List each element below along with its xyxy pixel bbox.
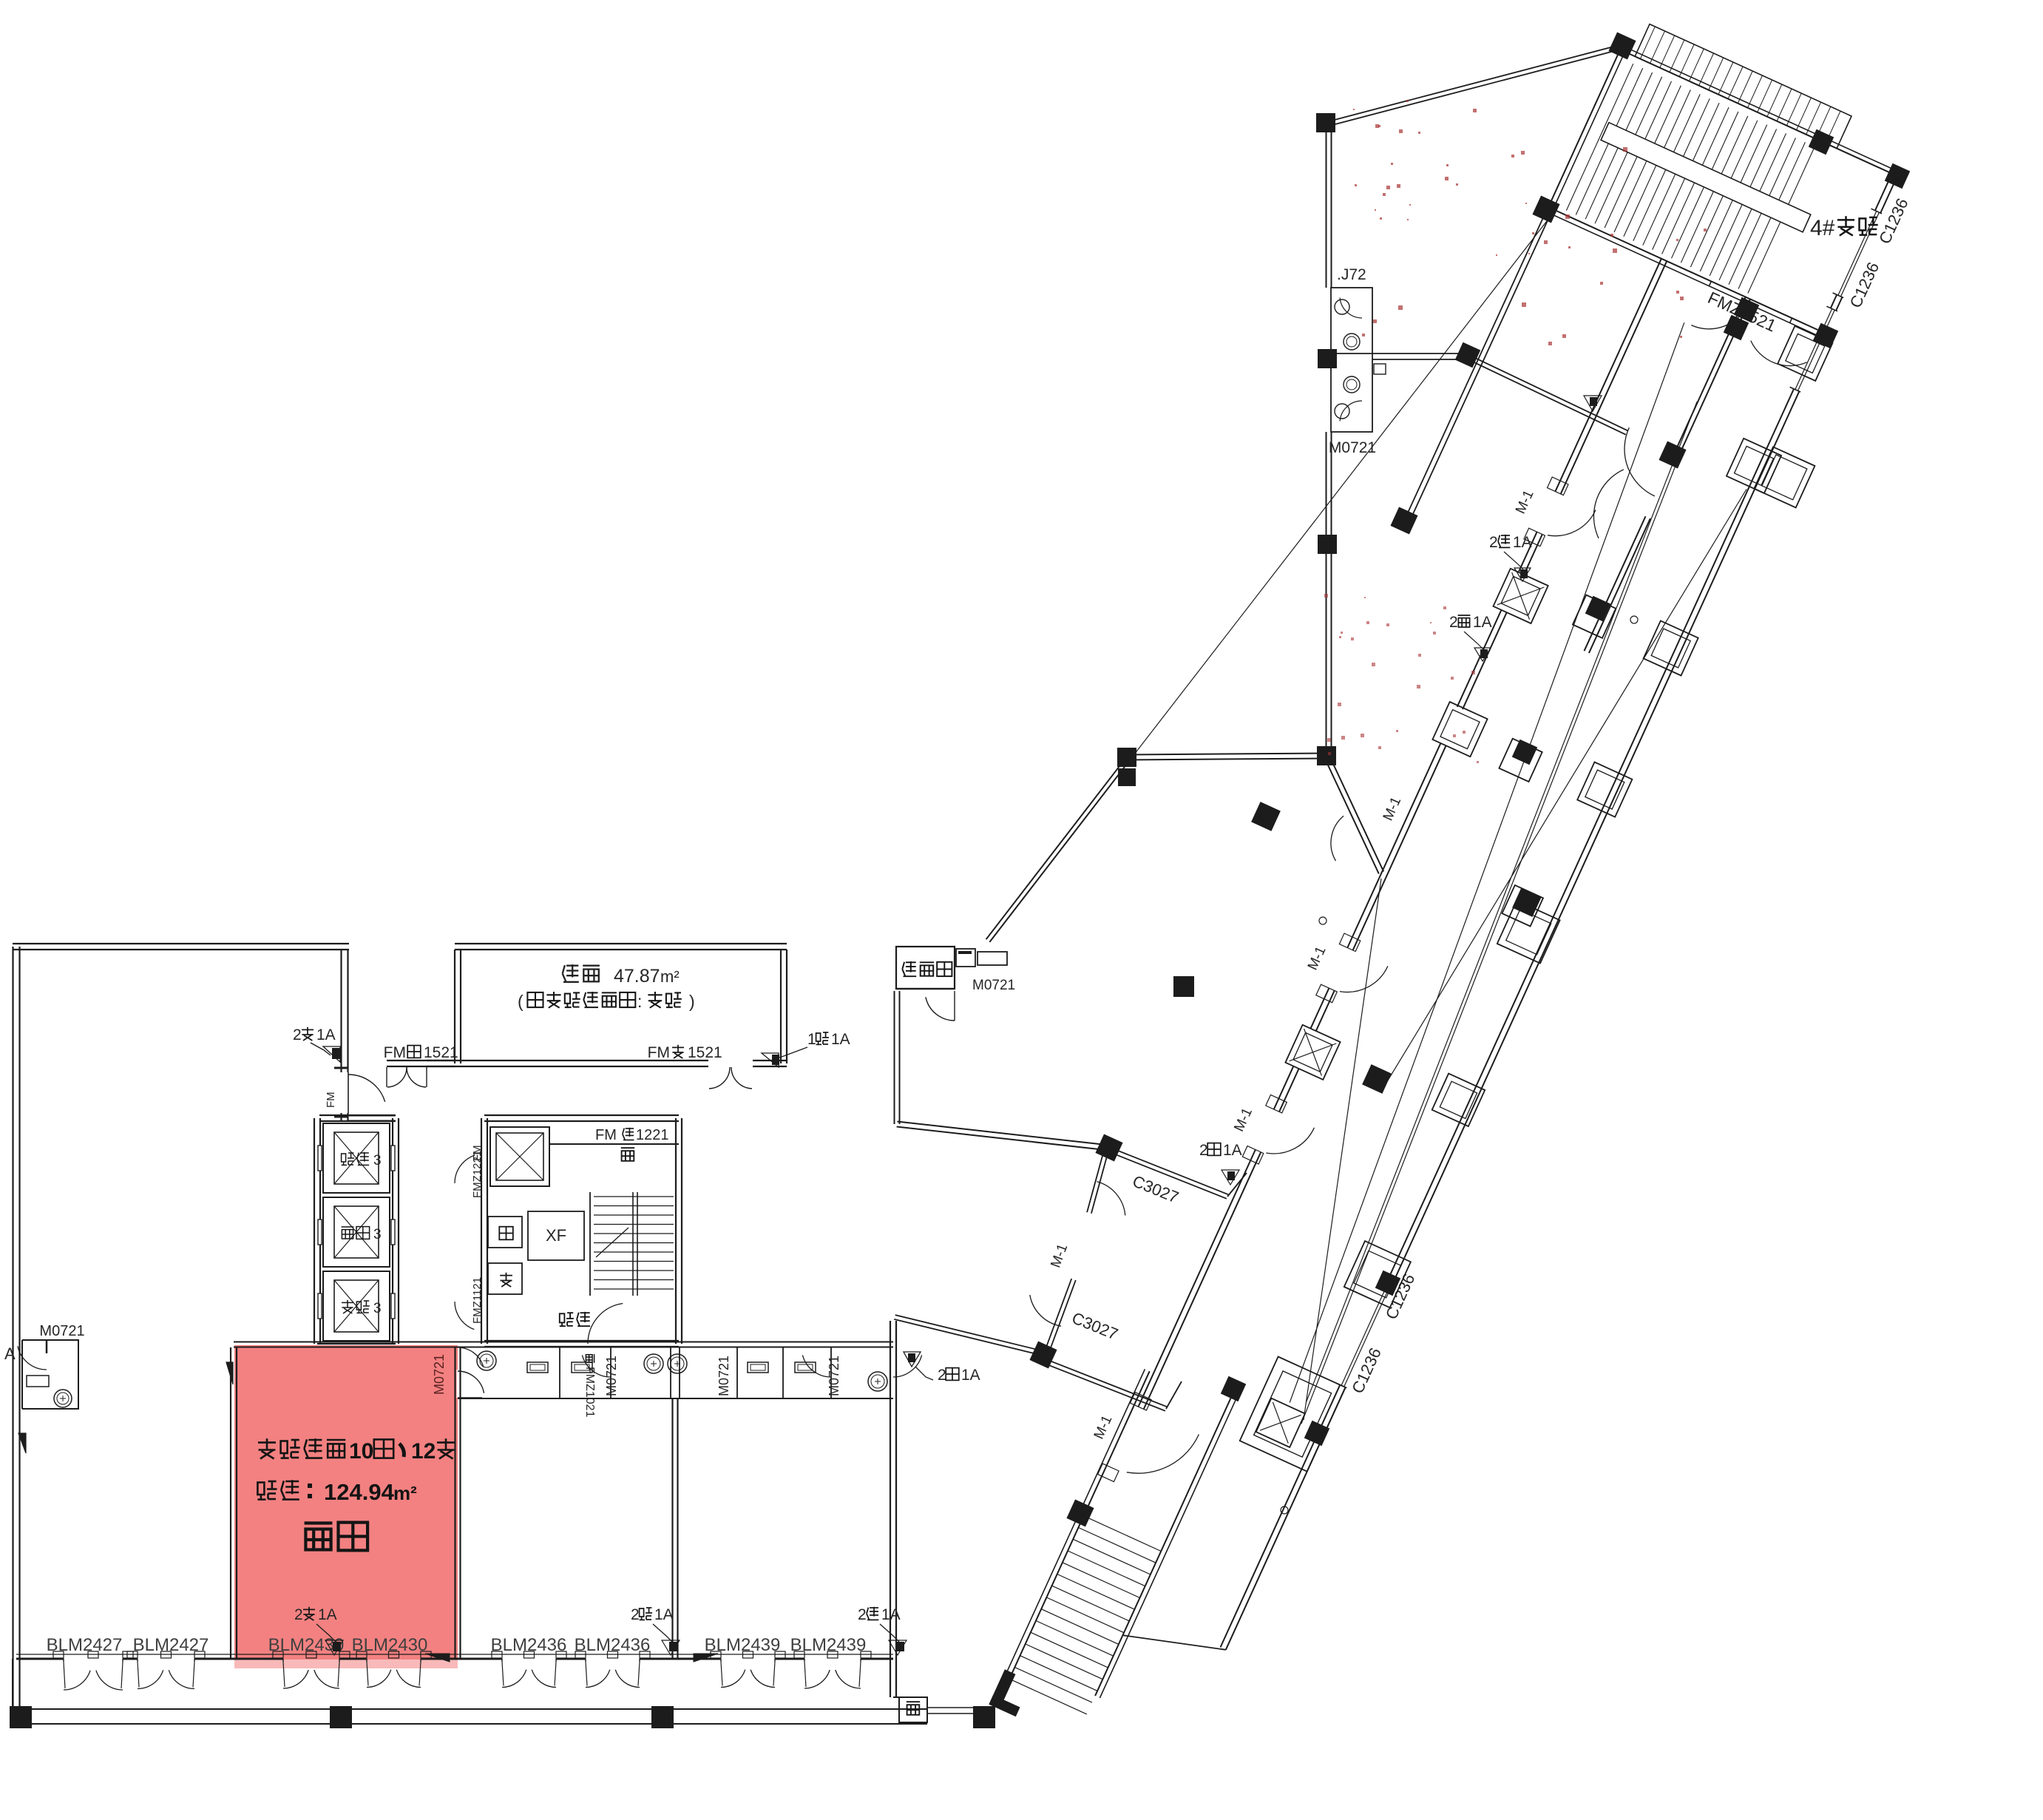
svg-text:1A: 1A bbox=[881, 1606, 901, 1623]
svg-text:2: 2 bbox=[1449, 614, 1458, 631]
svg-text:4#: 4# bbox=[1810, 216, 1835, 240]
svg-text:M0721: M0721 bbox=[39, 1323, 84, 1339]
svg-text:3: 3 bbox=[373, 1227, 382, 1242]
svg-text:2: 2 bbox=[858, 1606, 867, 1623]
svg-text:M0721: M0721 bbox=[827, 1356, 841, 1396]
svg-text:2: 2 bbox=[1199, 1142, 1208, 1159]
svg-text:47.87: 47.87 bbox=[614, 966, 660, 987]
svg-text:3: 3 bbox=[373, 1153, 382, 1168]
svg-text:BLM2436: BLM2436 bbox=[575, 1635, 651, 1655]
svg-text:BLM2436: BLM2436 bbox=[491, 1635, 567, 1655]
svg-text:10: 10 bbox=[349, 1439, 373, 1464]
svg-text:M0721: M0721 bbox=[972, 978, 1015, 993]
svg-text:1A: 1A bbox=[1513, 534, 1532, 551]
svg-text:BLM2439: BLM2439 bbox=[790, 1635, 867, 1655]
svg-text:BLM2439: BLM2439 bbox=[705, 1635, 781, 1655]
svg-text:FMZ1221: FMZ1221 bbox=[471, 1151, 484, 1198]
svg-text:1A: 1A bbox=[1223, 1142, 1242, 1159]
svg-text:1521: 1521 bbox=[424, 1044, 458, 1061]
svg-text:2: 2 bbox=[938, 1367, 946, 1384]
svg-text:BLM2430: BLM2430 bbox=[352, 1635, 428, 1655]
svg-text:BLM2427: BLM2427 bbox=[133, 1635, 209, 1655]
svg-text:(: ( bbox=[518, 992, 524, 1011]
svg-text:m²: m² bbox=[660, 967, 680, 986]
svg-text:2: 2 bbox=[1489, 534, 1498, 551]
svg-text:1521: 1521 bbox=[688, 1044, 722, 1061]
svg-text:124.94: 124.94 bbox=[324, 1479, 395, 1505]
svg-text:1A: 1A bbox=[831, 1031, 850, 1048]
svg-text:1A: 1A bbox=[316, 1026, 336, 1043]
svg-text:.J72: .J72 bbox=[1337, 266, 1366, 283]
svg-text:1A: 1A bbox=[318, 1606, 337, 1623]
svg-text:BLM2427: BLM2427 bbox=[47, 1635, 123, 1655]
svg-text:A: A bbox=[4, 1344, 16, 1363]
svg-text:FM: FM bbox=[384, 1044, 406, 1061]
svg-text:1A: 1A bbox=[1473, 614, 1492, 631]
svg-text:FM: FM bbox=[648, 1044, 670, 1061]
svg-text:12: 12 bbox=[411, 1439, 436, 1464]
svg-text:2: 2 bbox=[293, 1026, 302, 1043]
svg-text:): ) bbox=[689, 992, 695, 1011]
svg-text::: : bbox=[637, 992, 642, 1011]
svg-text:FMZ1021: FMZ1021 bbox=[583, 1367, 596, 1418]
svg-text:FM: FM bbox=[595, 1127, 617, 1143]
svg-text:M0721: M0721 bbox=[716, 1356, 731, 1396]
svg-text:M0721: M0721 bbox=[432, 1354, 447, 1395]
svg-text:1A: 1A bbox=[654, 1606, 674, 1623]
svg-text:2: 2 bbox=[631, 1606, 640, 1623]
svg-text:1A: 1A bbox=[961, 1367, 980, 1384]
svg-text:1221: 1221 bbox=[636, 1127, 669, 1143]
svg-text:FMZ1121: FMZ1121 bbox=[471, 1277, 484, 1324]
svg-text:XF: XF bbox=[546, 1226, 566, 1245]
svg-text:2: 2 bbox=[294, 1606, 303, 1623]
svg-text:M0721: M0721 bbox=[1329, 439, 1376, 456]
svg-text:M0721: M0721 bbox=[604, 1356, 619, 1396]
svg-text:3: 3 bbox=[373, 1301, 382, 1316]
svg-text:FM: FM bbox=[325, 1092, 337, 1108]
svg-text:1: 1 bbox=[807, 1031, 816, 1048]
svg-text:m²: m² bbox=[393, 1482, 417, 1504]
